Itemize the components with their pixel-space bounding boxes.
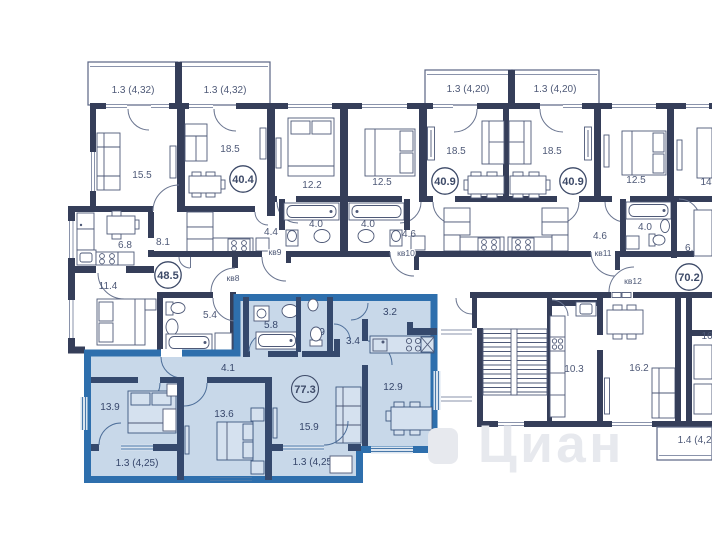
svg-text:кв9: кв9 bbox=[269, 247, 282, 257]
svg-text:70.2: 70.2 bbox=[678, 272, 699, 284]
svg-text:5.8: 5.8 bbox=[264, 320, 278, 331]
svg-text:кв8: кв8 bbox=[227, 273, 240, 283]
svg-text:15.5: 15.5 bbox=[132, 170, 152, 181]
svg-text:3.2: 3.2 bbox=[383, 307, 397, 318]
svg-text:12.2: 12.2 bbox=[302, 180, 322, 191]
svg-text:3.4: 3.4 bbox=[346, 336, 360, 347]
svg-text:4.6: 4.6 bbox=[402, 229, 416, 240]
svg-text:6.8: 6.8 bbox=[118, 240, 132, 251]
svg-text:1.3 (4,20): 1.3 (4,20) bbox=[447, 84, 490, 95]
svg-text:1.3 (4,25): 1.3 (4,25) bbox=[293, 457, 336, 468]
svg-text:18.5: 18.5 bbox=[542, 146, 562, 157]
svg-text:12.5: 12.5 bbox=[626, 175, 646, 186]
svg-text:4.4: 4.4 bbox=[264, 227, 278, 238]
svg-text:12.5: 12.5 bbox=[372, 177, 392, 188]
svg-text:4.1: 4.1 bbox=[221, 363, 235, 374]
svg-text:4.0: 4.0 bbox=[638, 222, 652, 233]
svg-text:1.4 (4,25): 1.4 (4,25) bbox=[678, 435, 712, 446]
svg-text:5.4: 5.4 bbox=[203, 310, 217, 321]
svg-text:1.3 (4,32): 1.3 (4,32) bbox=[112, 85, 155, 96]
svg-text:кв10: кв10 bbox=[397, 248, 415, 258]
svg-text:48.5: 48.5 bbox=[157, 270, 178, 282]
svg-text:4.0: 4.0 bbox=[309, 219, 323, 230]
svg-text:40.9: 40.9 bbox=[562, 176, 583, 188]
svg-text:11.4: 11.4 bbox=[99, 281, 118, 292]
svg-text:кв11: кв11 bbox=[594, 248, 611, 258]
svg-text:кв12: кв12 bbox=[624, 276, 642, 286]
svg-text:40.9: 40.9 bbox=[434, 176, 455, 188]
svg-text:15.9: 15.9 bbox=[299, 422, 319, 433]
svg-text:4.0: 4.0 bbox=[361, 219, 375, 230]
svg-text:77.3: 77.3 bbox=[294, 384, 315, 396]
svg-text:1.3 (4,25): 1.3 (4,25) bbox=[116, 458, 159, 469]
svg-text:1.3 (4,20): 1.3 (4,20) bbox=[534, 84, 577, 95]
svg-text:13.9: 13.9 bbox=[100, 402, 120, 413]
svg-text:1.3 (4,32): 1.3 (4,32) bbox=[204, 85, 247, 96]
svg-text:14: 14 bbox=[700, 177, 712, 188]
svg-text:40.4: 40.4 bbox=[232, 174, 254, 186]
svg-text:16.2: 16.2 bbox=[629, 363, 649, 374]
svg-text:Циан: Циан bbox=[478, 415, 625, 474]
svg-text:16: 16 bbox=[701, 331, 712, 342]
svg-text:8.1: 8.1 bbox=[156, 237, 170, 248]
svg-text:18.5: 18.5 bbox=[446, 146, 466, 157]
svg-text:12.9: 12.9 bbox=[383, 382, 403, 393]
svg-text:4.6: 4.6 bbox=[593, 231, 607, 242]
svg-text:18.5: 18.5 bbox=[220, 144, 240, 155]
svg-text:10.3: 10.3 bbox=[564, 364, 584, 375]
svg-text:13.6: 13.6 bbox=[214, 409, 234, 420]
